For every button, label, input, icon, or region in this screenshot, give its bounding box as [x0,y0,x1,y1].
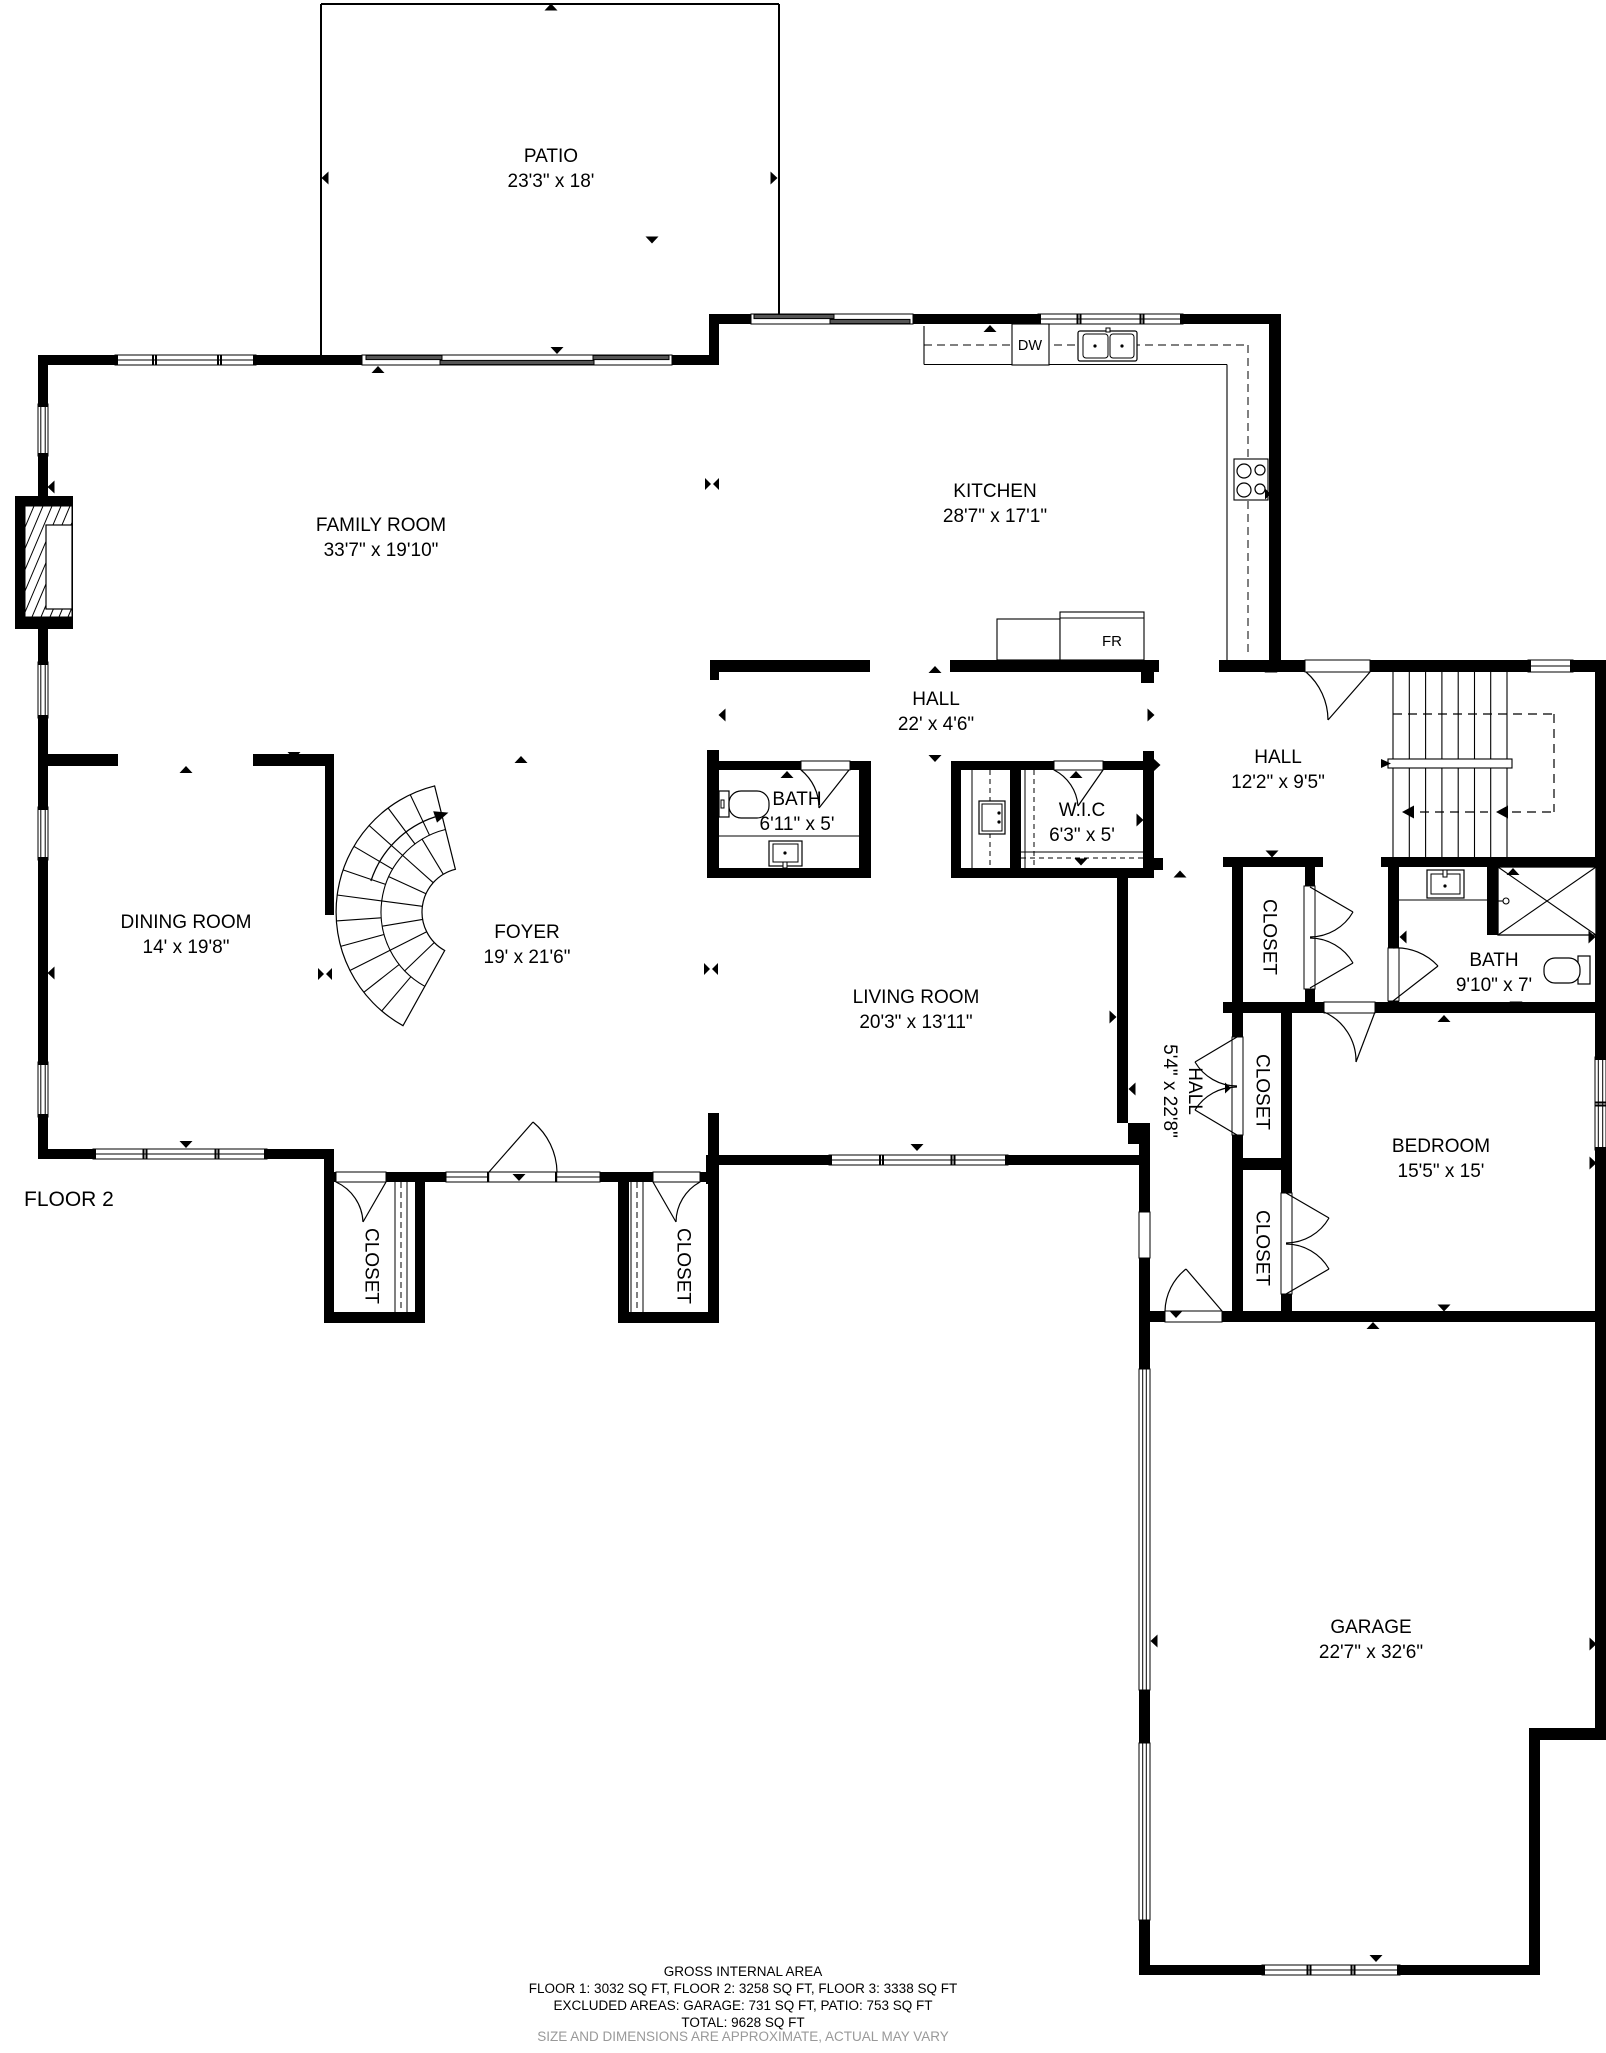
svg-text:FOYER: FOYER [494,922,559,943]
svg-text:W.I.C: W.I.C [1059,800,1105,821]
svg-text:BATH: BATH [772,789,821,810]
svg-text:28'7" x 17'1": 28'7" x 17'1" [943,506,1047,527]
svg-text:HALL: HALL [912,689,960,710]
svg-text:DINING ROOM: DINING ROOM [121,912,252,933]
svg-text:14' x 19'8": 14' x 19'8" [143,937,230,958]
svg-text:FLOOR 2: FLOOR 2 [24,1188,114,1211]
svg-text:HALL: HALL [1254,747,1302,768]
svg-text:GROSS INTERNAL AREA: GROSS INTERNAL AREA [664,1964,823,1979]
svg-text:9'10" x 7': 9'10" x 7' [1456,975,1532,996]
svg-text:CLOSET: CLOSET [1252,1054,1273,1130]
svg-text:6'3" x 5': 6'3" x 5' [1049,825,1115,846]
svg-text:33'7" x 19'10": 33'7" x 19'10" [324,540,439,561]
svg-text:LIVING ROOM: LIVING ROOM [853,987,980,1008]
svg-text:GARAGE: GARAGE [1330,1617,1411,1638]
svg-text:19' x 21'6": 19' x 21'6" [484,947,571,968]
svg-text:CLOSET: CLOSET [1259,899,1280,975]
svg-text:EXCLUDED AREAS: GARAGE: 731 SQ: EXCLUDED AREAS: GARAGE: 731 SQ FT, PATIO… [553,1998,932,2013]
svg-text:SIZE AND DIMENSIONS ARE APPROX: SIZE AND DIMENSIONS ARE APPROXIMATE, ACT… [537,2029,949,2044]
svg-text:HALL: HALL [1184,1067,1205,1115]
svg-text:PATIO: PATIO [524,146,578,167]
svg-text:22'7" x 32'6": 22'7" x 32'6" [1319,1642,1423,1663]
svg-text:FR: FR [1102,633,1122,650]
svg-text:5'4" x 22'8": 5'4" x 22'8" [1159,1044,1180,1138]
svg-text:FAMILY ROOM: FAMILY ROOM [316,515,446,536]
svg-text:DW: DW [1018,338,1042,354]
svg-text:FLOOR 1: 3032 SQ FT, FLOOR 2:: FLOOR 1: 3032 SQ FT, FLOOR 2: 3258 SQ FT… [529,1981,957,1996]
svg-text:15'5" x 15': 15'5" x 15' [1398,1161,1485,1182]
svg-text:CLOSET: CLOSET [361,1228,382,1304]
svg-text:23'3" x 18': 23'3" x 18' [508,171,595,192]
svg-text:12'2" x 9'5": 12'2" x 9'5" [1231,772,1325,793]
svg-text:KITCHEN: KITCHEN [953,481,1036,502]
svg-text:20'3" x 13'11": 20'3" x 13'11" [859,1012,972,1033]
svg-text:TOTAL: 9628 SQ FT: TOTAL: 9628 SQ FT [681,2015,804,2030]
svg-text:CLOSET: CLOSET [673,1228,694,1304]
svg-text:22' x 4'6": 22' x 4'6" [898,714,974,735]
svg-text:BEDROOM: BEDROOM [1392,1136,1490,1157]
svg-text:BATH: BATH [1469,950,1518,971]
svg-text:CLOSET: CLOSET [1252,1210,1273,1286]
svg-text:6'11" x 5': 6'11" x 5' [760,814,835,835]
